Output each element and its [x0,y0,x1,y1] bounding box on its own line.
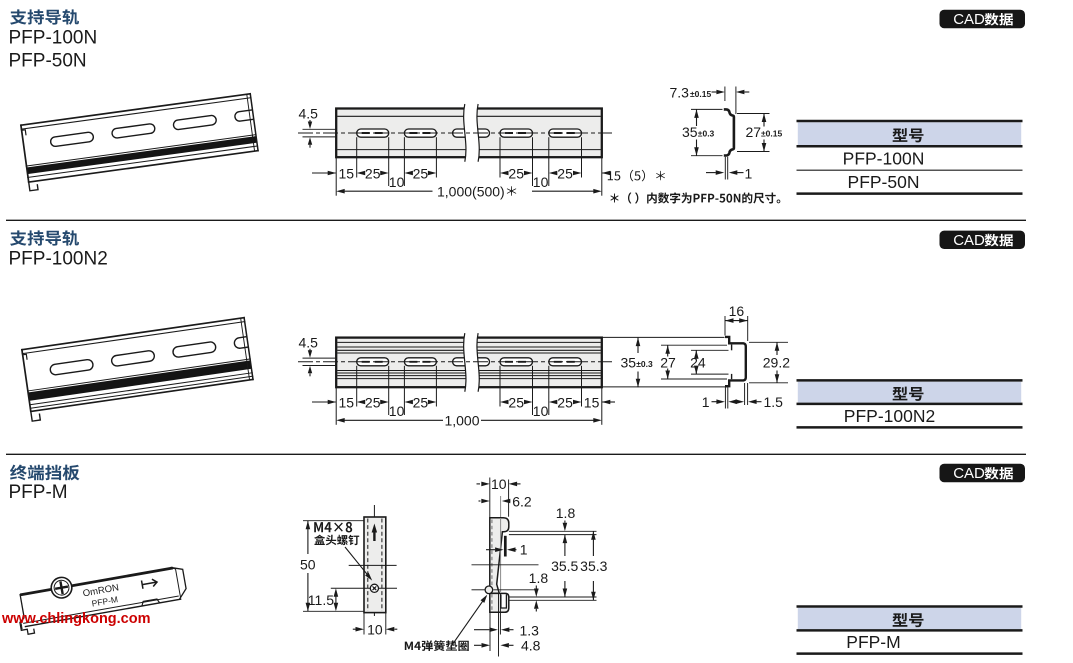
svg-text:10: 10 [389,174,405,190]
svg-text:7.3: 7.3 [670,84,690,100]
svg-text:50: 50 [300,556,316,572]
svg-text:PFP-100N: PFP-100N [843,148,925,168]
svg-text:±0.3: ±0.3 [636,359,653,369]
svg-text:4.5: 4.5 [299,106,319,122]
svg-text:6.2: 6.2 [512,494,532,510]
svg-text:PFP-M: PFP-M [846,632,900,652]
svg-text:CAD: CAD [953,465,985,482]
svg-text:±0.3: ±0.3 [698,129,715,139]
svg-text:15: 15 [339,165,355,181]
svg-text:PFP-100N2: PFP-100N2 [844,406,935,426]
svg-text:10: 10 [533,174,549,190]
svg-text:15: 15 [584,394,600,410]
svg-text:CAD: CAD [953,232,985,249]
svg-text:25: 25 [557,165,573,181]
svg-text:10: 10 [389,403,405,419]
svg-text:www.chlingkong.com: www.chlingkong.com [1,611,151,627]
svg-text:1.8: 1.8 [529,570,549,586]
svg-text:1.5: 1.5 [764,394,784,410]
svg-text:25: 25 [413,394,429,410]
svg-text:35: 35 [621,354,637,370]
svg-text:24: 24 [690,354,706,370]
svg-text:PFP-100N: PFP-100N [9,28,98,49]
svg-text:PFP-M: PFP-M [9,482,68,503]
svg-text:±0.15: ±0.15 [761,129,782,139]
svg-text:10: 10 [491,476,507,492]
svg-text:1: 1 [702,394,710,410]
svg-text:4.8: 4.8 [521,637,541,653]
svg-text:PFP-50N: PFP-50N [9,50,87,71]
svg-text:10: 10 [533,403,549,419]
svg-text:10: 10 [367,621,383,637]
svg-text:11.5: 11.5 [308,592,334,608]
svg-text:15: 15 [339,394,355,410]
svg-text:16: 16 [729,303,745,319]
svg-text:4.5: 4.5 [299,334,319,350]
svg-text:27: 27 [660,354,676,370]
svg-text:1: 1 [745,165,753,181]
svg-text:PFP-100N2: PFP-100N2 [9,249,108,270]
svg-text:35.3: 35.3 [580,558,607,574]
svg-text:1,000(500): 1,000(500) [437,184,505,200]
svg-text:29.2: 29.2 [763,354,790,370]
svg-text:25: 25 [413,165,429,181]
svg-text:1,000: 1,000 [444,413,479,429]
svg-text:25: 25 [365,394,381,410]
svg-text:25: 25 [365,165,381,181]
svg-text:±0.15: ±0.15 [690,89,711,99]
svg-text:25: 25 [557,394,573,410]
svg-text:1: 1 [520,542,528,558]
svg-text:PFP-50N: PFP-50N [848,172,920,192]
svg-text:25: 25 [508,165,524,181]
svg-text:1.8: 1.8 [556,505,576,521]
svg-text:27: 27 [746,124,762,140]
svg-text:25: 25 [508,394,524,410]
svg-text:35: 35 [682,124,698,140]
svg-text:1.3: 1.3 [520,622,540,638]
svg-text:CAD: CAD [953,11,985,28]
svg-text:35.5: 35.5 [551,558,578,574]
